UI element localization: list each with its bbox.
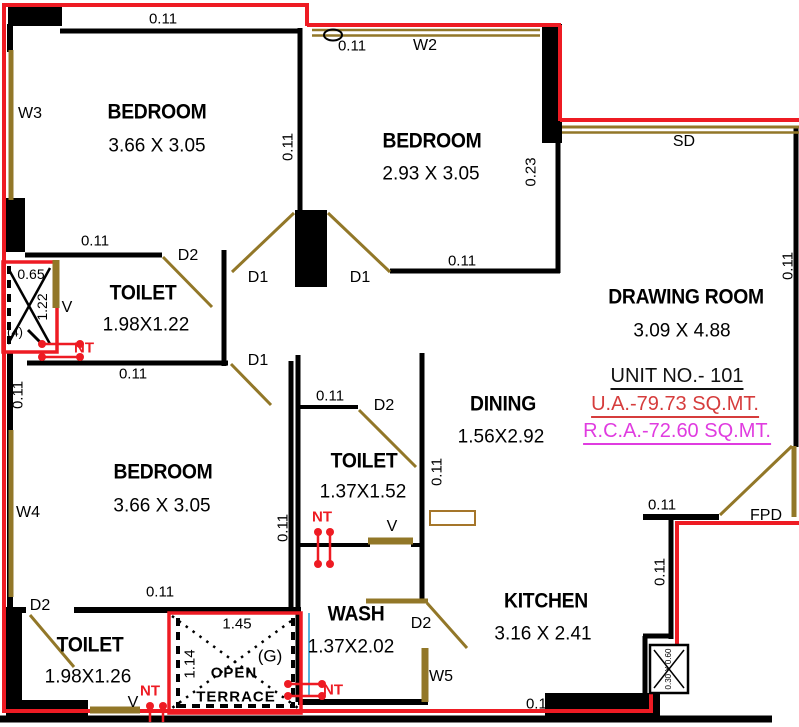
dim-duct-width: 0.65 xyxy=(17,267,44,281)
room-label-kitchen: KITCHEN xyxy=(504,591,588,612)
dim-kitchen-step: 0.11 xyxy=(648,498,676,513)
room-label-toilet2: TOILET xyxy=(331,451,398,472)
room-dims-bedroom1: 3.66 X 3.05 xyxy=(108,137,205,156)
door-label-d2-toilet1: D2 xyxy=(178,248,198,264)
room-label-toilet1: TOILET xyxy=(110,283,177,304)
room-dims-bedroom2: 2.93 X 3.05 xyxy=(382,165,479,184)
dim-kitchen-bottom: 0.11 xyxy=(526,697,554,712)
unit-rca-area: R.C.A.-72.60 SQ.MT. xyxy=(583,421,771,445)
room-dims-toilet1: 1.98X1.22 xyxy=(103,316,190,335)
vent-label-v-toilet3: V xyxy=(128,695,139,711)
door-label-sd: SD xyxy=(673,134,695,150)
dim-terrace-height: 1.14 xyxy=(183,649,198,678)
nt-label-toilet1: NT xyxy=(74,341,94,356)
dim-toilet1-bottom: 0.11 xyxy=(119,367,147,382)
window-label-w2: W2 xyxy=(413,38,437,54)
dim-bedroom2-bottom: 0.11 xyxy=(448,254,476,269)
room-dims-kitchen: 3.16 X 2.41 xyxy=(494,625,591,644)
room-dims-toilet2: 1.37X1.52 xyxy=(320,483,407,502)
nt-label-toilet3: NT xyxy=(140,684,160,699)
room-label-drawing-room: DRAWING ROOM xyxy=(608,287,764,308)
dim-bedroom3-right: 0.11 xyxy=(276,514,291,542)
kitchen-platform xyxy=(430,511,475,525)
dim-terrace-width: 1.45 xyxy=(222,617,251,632)
room-label-open-terrace-1: OPEN xyxy=(211,666,258,681)
room-label-dining: DINING xyxy=(470,394,536,415)
dim-duct-height: 1.22 xyxy=(35,293,49,320)
dim-bedroom3-bottom: 0.11 xyxy=(146,585,174,600)
dim-kitchen-duct: 0.30 X 0.60 xyxy=(665,649,673,690)
room-dims-bedroom3: 3.66 X 3.05 xyxy=(113,497,210,516)
door-label-d1-bedroom1: D1 xyxy=(248,270,268,286)
unit-ua-area: U.A.-79.73 SQ.MT. xyxy=(591,394,759,418)
door-label-d2-wash: D2 xyxy=(411,616,431,632)
door-label-d1-bedroom3: D1 xyxy=(248,353,268,369)
dim-toilet1-top: 0.11 xyxy=(81,234,109,249)
terrace-tag: (G) xyxy=(258,648,283,665)
duct-tag: (4) xyxy=(7,326,23,339)
room-label-bedroom1: BEDROOM xyxy=(108,102,207,123)
nt-label-wash: NT xyxy=(323,683,343,698)
dim-column-023: 0.23 xyxy=(524,157,539,186)
room-label-bedroom2: BEDROOM xyxy=(383,131,482,152)
dim-bedroom2-top: 0.11 xyxy=(338,39,366,54)
dim-toilet2-right: 0.11 xyxy=(430,458,445,486)
door-label-d2-toilet3: D2 xyxy=(30,598,50,614)
room-dims-dining: 1.56X2.92 xyxy=(458,428,545,447)
room-label-open-terrace-2: TERRACE xyxy=(196,690,276,705)
window-label-w5: W5 xyxy=(429,669,453,685)
dim-toilet2-top: 0.11 xyxy=(316,389,344,404)
room-label-bedroom3: BEDROOM xyxy=(114,462,213,483)
room-label-toilet3: TOILET xyxy=(57,635,124,656)
door-label-d2-toilet2: D2 xyxy=(374,398,394,414)
dim-kitchen-right: 0.11 xyxy=(653,558,668,586)
room-dims-toilet3: 1.98X1.26 xyxy=(45,668,132,687)
dim-left-wall: 0.11 xyxy=(11,381,26,409)
window-label-w3: W3 xyxy=(18,106,42,122)
dim-bedroom1-top: 0.11 xyxy=(149,12,177,27)
door-label-d1-bedroom2: D1 xyxy=(350,270,370,286)
unit-number: UNIT NO.- 101 xyxy=(611,366,744,390)
room-label-wash: WASH xyxy=(328,604,385,625)
room-dims-wash: 1.37X2.02 xyxy=(308,638,395,657)
room-dims-drawing-room: 3.09 X 4.88 xyxy=(633,322,730,341)
window-label-w4: W4 xyxy=(16,505,40,521)
vent-label-v-toilet2: V xyxy=(387,519,398,535)
dim-drawing-right: 0.11 xyxy=(781,252,796,280)
door-label-fpd: FPD xyxy=(750,508,782,524)
vent-label-v-toilet1: V xyxy=(62,300,73,316)
floorplan: BEDROOM 3.66 X 3.05 BEDROOM 2.93 X 3.05 … xyxy=(0,0,799,727)
nt-label-toilet2: NT xyxy=(312,510,332,525)
dim-bedroom-divider: 0.11 xyxy=(281,133,296,161)
